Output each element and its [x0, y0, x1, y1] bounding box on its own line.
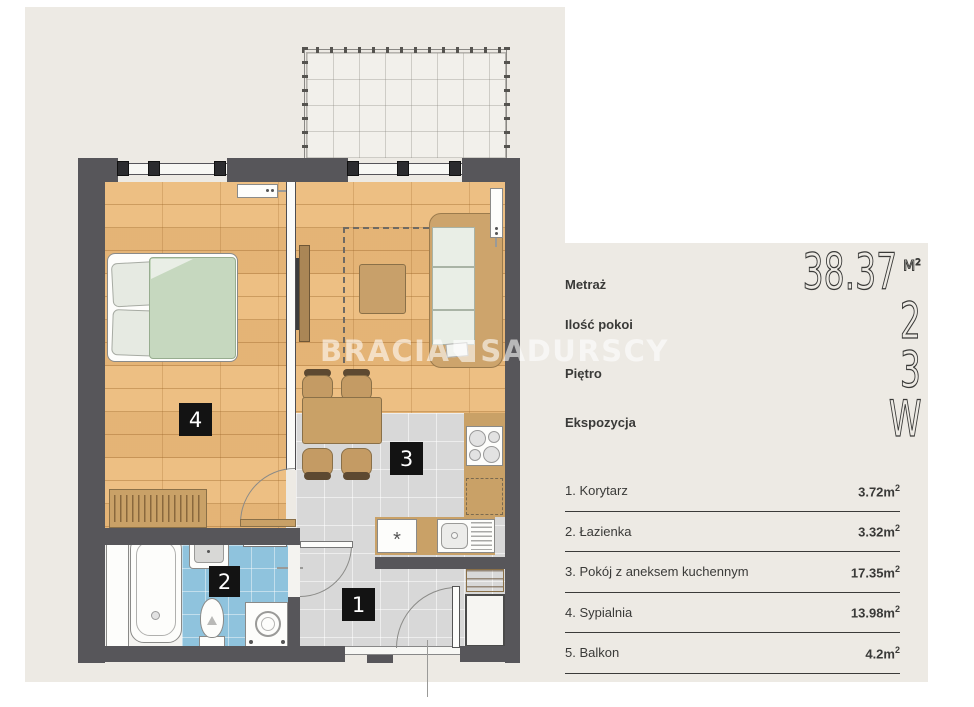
room-area-value: 3.32m: [858, 524, 895, 539]
coffee-table: [359, 264, 406, 314]
dishwasher-symbol: *: [393, 529, 401, 552]
bathtub-drain: [151, 611, 160, 620]
room-area-sup: 2: [895, 564, 900, 574]
entrance-axis-line: [427, 640, 428, 697]
room-list-area: 13.98m2: [851, 604, 900, 620]
bedroom-window: [118, 163, 227, 175]
sink-drain: [451, 532, 458, 539]
wall-bottom-right: [460, 646, 520, 662]
room-label-bathroom-text: 2: [218, 570, 231, 594]
room-area-sup: 2: [895, 604, 900, 614]
kitchen-shelf: [466, 569, 504, 592]
bed-duvet-fold: [151, 259, 193, 279]
washing-machine-knob: [249, 640, 253, 644]
room-area-sup: 2: [895, 645, 900, 655]
living-radiator-valve: [495, 227, 498, 230]
room-list-area: 4.2m2: [865, 645, 900, 661]
washbasin-drain: [207, 550, 210, 553]
stat-unit-metraz: M2: [903, 258, 921, 275]
living-radiator: [490, 188, 503, 238]
watermark-square-icon: [453, 340, 475, 362]
wall-kitchen-divider: [375, 557, 517, 569]
room-label-living-text: 3: [400, 447, 413, 471]
bathroom-door-leaf: [300, 541, 353, 548]
living-window-mark: [397, 161, 409, 176]
planned-wardrobe-dashed-top: [343, 227, 429, 229]
bedroom-radiator-valve2: [271, 189, 274, 192]
wall-bottom-left: [78, 646, 345, 662]
room-label-bedroom: 4: [179, 403, 212, 436]
room-area-value: 4.2m: [865, 646, 895, 661]
room-area-value: 17.35m: [851, 565, 895, 580]
stat-value-pietro: 3: [700, 348, 921, 392]
burner-large-1: [469, 430, 486, 447]
room-list-area: 17.35m2: [851, 564, 900, 580]
stat-value-ekspozycja: W: [700, 397, 921, 441]
room-label-bathroom: 2: [209, 566, 240, 597]
balcony-floor: [306, 52, 506, 160]
stat-value-ekspozycja-number: W: [888, 397, 921, 441]
dishwasher: *: [377, 519, 417, 553]
room-list-name: 3. Pokój z aneksem kuchennym: [565, 564, 749, 579]
room-list-name: 4. Sypialnia: [565, 605, 632, 620]
room-list-row: 1. Korytarz 3.72m2: [565, 471, 900, 512]
washing-machine-door: [261, 617, 275, 631]
sofa-cushions: [432, 227, 475, 345]
sink-drainboard: [471, 522, 492, 550]
room-list-area: 3.32m2: [858, 523, 900, 539]
bathtub-inner: [136, 541, 176, 636]
toilet-drain-triangle: [207, 616, 217, 625]
bedroom-door-leaf: [240, 519, 296, 527]
burner-small-2: [469, 449, 481, 461]
bathroom-door-opening: [288, 545, 300, 597]
sofa-cushion-divider1: [433, 266, 474, 268]
wall-left: [78, 158, 105, 663]
room-list-row: 5. Balkon 4.2m2: [565, 633, 900, 674]
stat-unit-letter: M: [903, 259, 915, 275]
wall-top-left-corner: [78, 158, 118, 182]
room-list-name: 2. Łazienka: [565, 524, 632, 539]
entrance-door-leaf: [452, 586, 460, 648]
wall-bathroom-top: [105, 528, 300, 545]
burner-large-2: [483, 446, 500, 463]
room-label-corridor: 1: [342, 588, 375, 621]
stat-value-metraz: 38.37 M2: [700, 250, 921, 294]
bathroom-cabinet: [106, 536, 129, 647]
room-list-row: 4. Sypialnia 13.98m2: [565, 593, 900, 634]
room-label-bedroom-text: 4: [189, 408, 202, 432]
watermark-text-bracia: BRACIA: [320, 334, 450, 368]
room-list-row: 3. Pokój z aneksem kuchennym 17.35m2: [565, 552, 900, 593]
watermark-logo: BRACIA SADURSCY: [320, 336, 669, 366]
balcony-railing-left: [302, 47, 308, 160]
room-list: 1. Korytarz 3.72m2 2. Łazienka 3.32m2 3.…: [565, 471, 900, 674]
room-list-name: 1. Korytarz: [565, 483, 628, 498]
fridge: [465, 594, 505, 647]
burner-small-1: [488, 431, 500, 443]
living-radiator-valve2: [495, 232, 498, 235]
living-radiator-pipe: [495, 238, 497, 247]
bedroom-radiator-valve: [266, 189, 269, 192]
room-list-row: 2. Łazienka 3.32m2: [565, 512, 900, 553]
bedroom-window-mark: [148, 161, 160, 176]
room-label-living: 3: [390, 442, 423, 475]
stat-label-pietro: Piętro: [565, 366, 602, 381]
balcony-railing-top: [302, 47, 510, 53]
stat-value-pokoi-number: 2: [900, 299, 921, 343]
wall-bedroom-divider: [286, 182, 296, 470]
room-area-value: 3.72m: [858, 484, 895, 499]
living-window-mark: [347, 161, 359, 176]
room-label-corridor-text: 1: [352, 593, 365, 617]
wall-top-middle: [227, 158, 348, 182]
stat-label-pokoi: Ilość pokoi: [565, 317, 633, 332]
room-list-name: 5. Balkon: [565, 645, 619, 660]
living-window-mark: [449, 161, 461, 176]
bedroom-window-mark: [214, 161, 226, 176]
stat-unit-sup: 2: [915, 258, 921, 268]
wardrobe-hangers: [114, 495, 202, 522]
room-area-sup: 2: [895, 483, 900, 493]
room-area-sup: 2: [895, 523, 900, 533]
bedroom-window-mark: [117, 161, 129, 176]
wall-right: [505, 158, 520, 663]
washing-machine-knob2: [281, 640, 285, 644]
stat-label-ekspozycja: Ekspozycja: [565, 415, 636, 430]
chair-back: [304, 472, 331, 480]
floorplan-page: * 4 3: [0, 0, 974, 707]
stat-value-metraz-number: 38.37: [803, 250, 897, 294]
room-area-value: 13.98m: [851, 605, 895, 620]
dining-table: [302, 397, 382, 444]
sofa-cushion-divider2: [433, 309, 474, 311]
stat-value-pokoi: 2: [700, 299, 921, 343]
wall-bathroom-right: [288, 597, 300, 648]
balcony-railing-right: [504, 47, 510, 160]
room-list-area: 3.72m2: [858, 483, 900, 499]
chair-back: [343, 472, 370, 480]
under-counter-appliance: [466, 478, 503, 515]
watermark-text-sadurscy: SADURSCY: [480, 334, 668, 368]
tv-cabinet: [299, 245, 310, 342]
stat-value-pietro-number: 3: [900, 348, 921, 392]
stat-label-metraz: Metraż: [565, 277, 606, 292]
